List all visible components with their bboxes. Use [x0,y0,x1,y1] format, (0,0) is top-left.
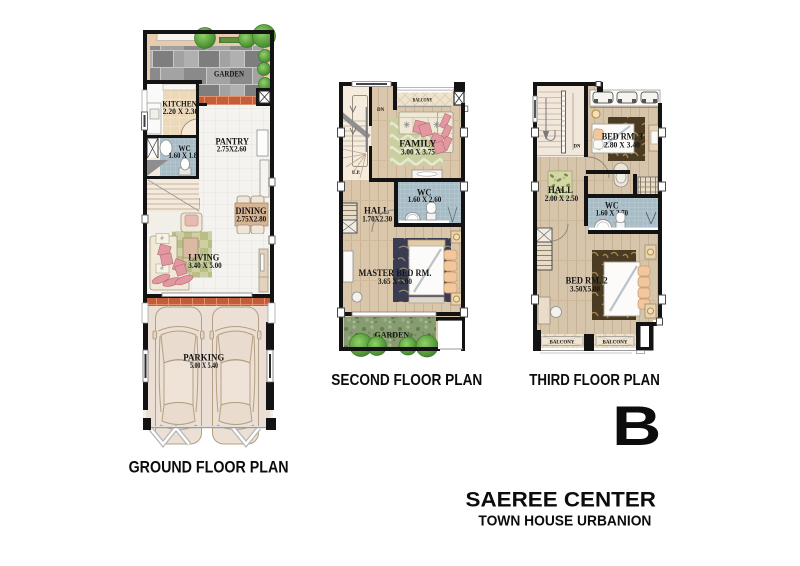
svg-text:5.00 X 5.40: 5.00 X 5.40 [190,361,218,370]
svg-text:B: B [612,396,661,458]
svg-text:3.50X5.00: 3.50X5.00 [570,285,600,294]
svg-text:3.40 X 5.00: 3.40 X 5.00 [188,261,221,270]
svg-text:GROUND FLOOR PLAN: GROUND FLOOR PLAN [129,458,289,477]
svg-text:1.60 X 2.60: 1.60 X 2.60 [408,195,442,204]
svg-text:GARDEN: GARDEN [214,70,244,79]
svg-text:BALCONY: BALCONY [413,97,433,103]
svg-text:U.P.: U.P. [352,171,360,176]
svg-text:TOWN HOUSE URBANION: TOWN HOUSE URBANION [478,513,651,529]
svg-text:2.80 X 3.40: 2.80 X 3.40 [604,141,640,150]
svg-text:2.75X2.80: 2.75X2.80 [236,215,266,224]
svg-text:SAEREE CENTER: SAEREE CENTER [466,488,657,512]
svg-text:2.00 X 2.50: 2.00 X 2.50 [545,194,578,203]
svg-text:1.70X2.30: 1.70X2.30 [362,215,392,224]
svg-text:BALCONY: BALCONY [549,341,574,346]
svg-text:2.20 X 2.30: 2.20 X 2.30 [163,107,198,116]
svg-text:1.60 X 1.80: 1.60 X 1.80 [169,151,201,160]
svg-text:DN: DN [574,145,581,150]
svg-text:3.65 X 5.00: 3.65 X 5.00 [378,277,412,286]
svg-text:2.75X2.60: 2.75X2.60 [217,145,247,154]
svg-text:SECOND FLOOR PLAN: SECOND FLOOR PLAN [331,372,482,389]
svg-text:THIRD FLOOR PLAN: THIRD FLOOR PLAN [529,372,660,389]
svg-text:BALCONY: BALCONY [602,341,627,346]
svg-text:DN: DN [377,108,385,113]
svg-text:3.00 X 3.75: 3.00 X 3.75 [401,148,435,157]
